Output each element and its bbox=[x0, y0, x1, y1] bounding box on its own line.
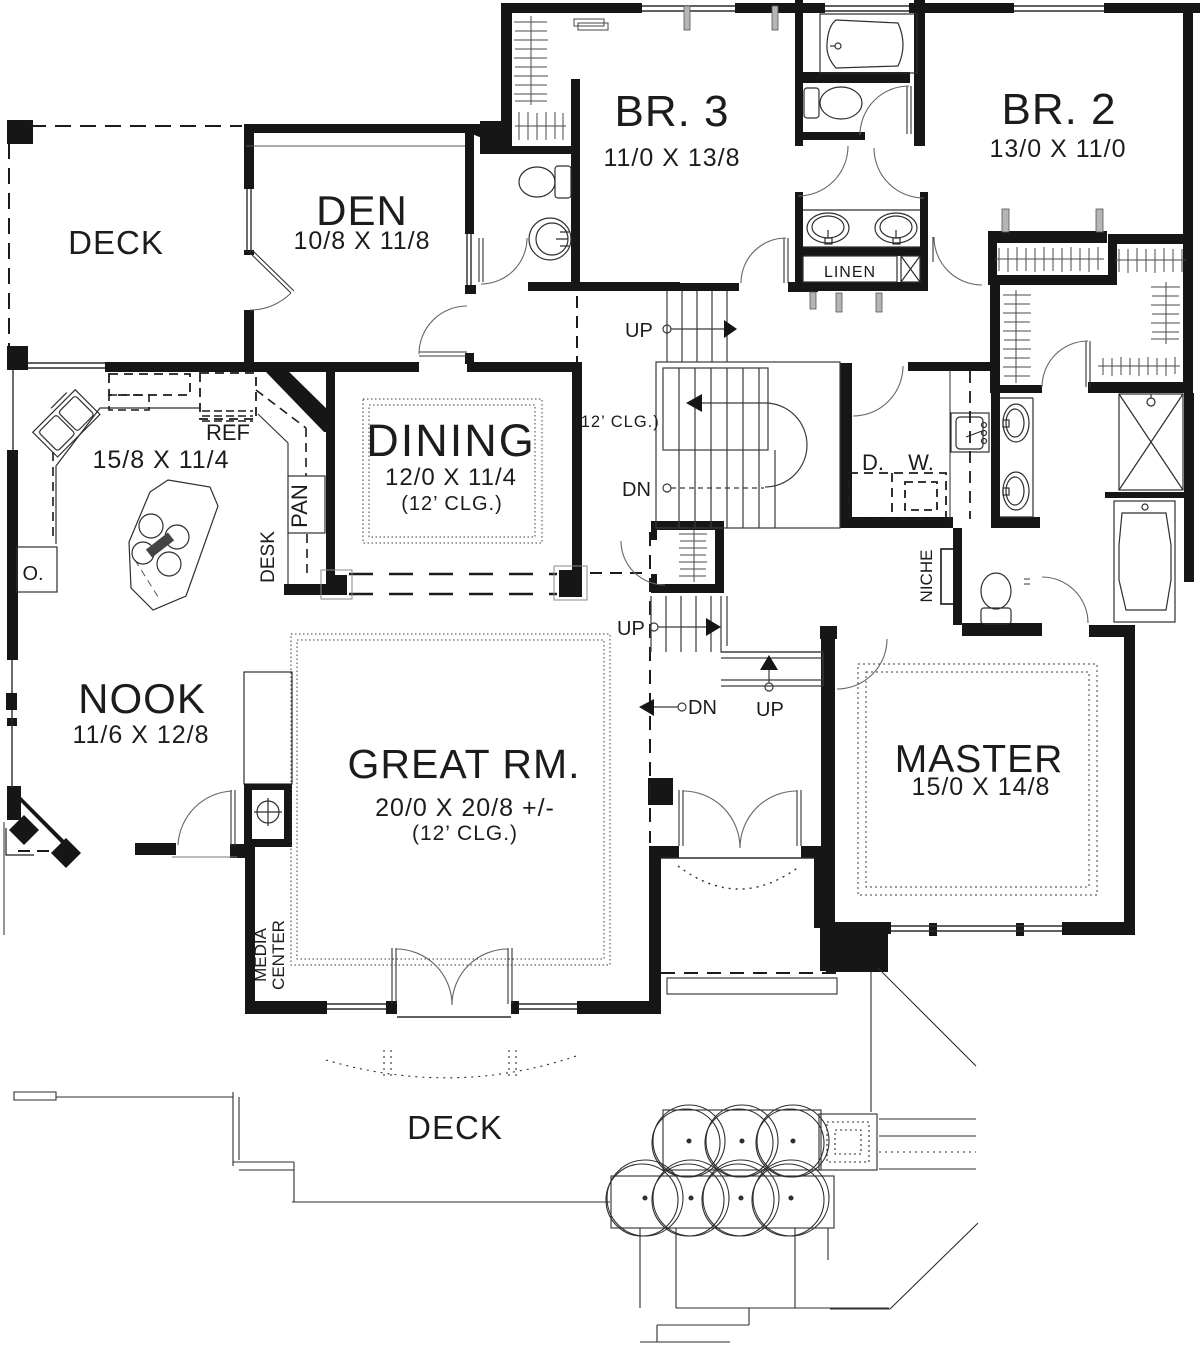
svg-text:DN: DN bbox=[688, 697, 717, 719]
svg-text:15/8 X 11/4: 15/8 X 11/4 bbox=[92, 446, 229, 474]
svg-text:(12’ CLG.): (12’ CLG.) bbox=[412, 822, 518, 845]
svg-text:BR. 3: BR. 3 bbox=[614, 87, 729, 136]
svg-text:UP: UP bbox=[756, 699, 784, 721]
svg-text:20/0 X 20/8 +/-: 20/0 X 20/8 +/- bbox=[375, 794, 555, 822]
svg-text:MEDIA: MEDIA bbox=[251, 927, 270, 982]
svg-text:DECK: DECK bbox=[407, 1109, 503, 1146]
svg-text:UP: UP bbox=[617, 618, 645, 640]
svg-text:11/0 X 13/8: 11/0 X 13/8 bbox=[603, 144, 740, 172]
svg-text:NOOK: NOOK bbox=[78, 675, 206, 722]
svg-text:UP: UP bbox=[625, 320, 653, 342]
svg-text:DESK: DESK bbox=[258, 531, 279, 583]
svg-text:12/0 X 11/4: 12/0 X 11/4 bbox=[385, 464, 517, 491]
svg-text:LINEN: LINEN bbox=[824, 264, 876, 281]
svg-text:10/8 X 11/8: 10/8 X 11/8 bbox=[293, 227, 430, 255]
svg-text:NICHE: NICHE bbox=[917, 550, 936, 603]
svg-text:11/6 X 12/8: 11/6 X 12/8 bbox=[72, 721, 209, 749]
svg-text:(12’ CLG.): (12’ CLG.) bbox=[401, 493, 503, 515]
svg-text:13/0 X 11/0: 13/0 X 11/0 bbox=[989, 135, 1126, 163]
svg-text:15/0 X 14/8: 15/0 X 14/8 bbox=[912, 773, 1051, 801]
svg-text:D.: D. bbox=[862, 450, 884, 475]
svg-text:DECK: DECK bbox=[68, 224, 164, 261]
svg-text:REF: REF bbox=[206, 420, 250, 445]
svg-text:(12’ CLG.): (12’ CLG.) bbox=[574, 413, 660, 431]
svg-text:DINING: DINING bbox=[366, 415, 536, 466]
svg-text:CENTER: CENTER bbox=[269, 920, 288, 990]
svg-text:DN: DN bbox=[622, 479, 651, 501]
svg-text:BR. 2: BR. 2 bbox=[1001, 85, 1116, 134]
svg-text:PAN: PAN bbox=[287, 484, 312, 528]
svg-text:W.: W. bbox=[908, 450, 934, 475]
svg-text:O.: O. bbox=[22, 563, 43, 585]
svg-text:GREAT RM.: GREAT RM. bbox=[348, 741, 581, 787]
